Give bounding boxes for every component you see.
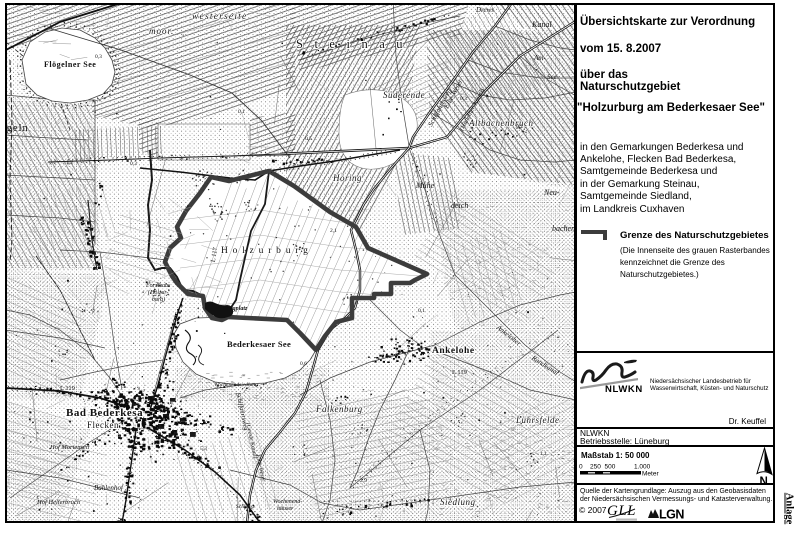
svg-text:deich: deich bbox=[451, 201, 468, 210]
svg-text:1,1: 1,1 bbox=[540, 451, 547, 457]
svg-text:N: N bbox=[760, 476, 768, 488]
svg-text:0,2: 0,2 bbox=[516, 124, 523, 130]
svg-text:0,3: 0,3 bbox=[460, 96, 467, 102]
svg-text:Schleuse: Schleuse bbox=[236, 504, 256, 510]
svg-text:Bad Bederkesa: Bad Bederkesa bbox=[66, 407, 143, 419]
svg-text:Altbachenbruch: Altbachenbruch bbox=[468, 118, 534, 128]
svg-text:0,6: 0,6 bbox=[300, 361, 307, 367]
svg-text:Lührsfelde: Lührsfelde bbox=[515, 415, 560, 425]
svg-text:2,9: 2,9 bbox=[360, 478, 367, 484]
svg-text:Hof Mortensen: Hof Mortensen bbox=[49, 444, 89, 451]
svg-text:See: See bbox=[547, 73, 557, 81]
svg-text:1.000: 1.000 bbox=[634, 464, 651, 471]
svg-text:Kanal: Kanal bbox=[531, 20, 552, 29]
svg-text:Mühe: Mühe bbox=[415, 181, 435, 190]
svg-text:250: 250 bbox=[590, 464, 601, 471]
svg-text:Flecken: Flecken bbox=[87, 420, 119, 430]
svg-text:2,1: 2,1 bbox=[330, 228, 337, 234]
svg-text:Wochenendsiedlung: Wochenendsiedlung bbox=[214, 382, 258, 388]
svg-text:Ankelohe: Ankelohe bbox=[432, 346, 475, 356]
svg-text:westerseite: westerseite bbox=[192, 12, 247, 22]
svg-text:0,1: 0,1 bbox=[418, 308, 425, 314]
svg-text:1,2: 1,2 bbox=[66, 160, 73, 166]
svg-text:Neu-: Neu- bbox=[543, 188, 560, 197]
svg-text:moor.: moor. bbox=[149, 26, 174, 36]
svg-text:Hof Hellerbruch: Hof Hellerbruch bbox=[36, 499, 80, 506]
svg-text:0,3: 0,3 bbox=[130, 161, 137, 167]
svg-text:0,5: 0,5 bbox=[305, 136, 312, 142]
svg-text:Meter: Meter bbox=[642, 471, 659, 478]
svg-text:Höring: Höring bbox=[332, 173, 362, 183]
svg-text:Drews: Drews bbox=[475, 6, 494, 14]
svg-text:Steinau: Steinau bbox=[296, 37, 414, 51]
svg-text:burg): burg) bbox=[152, 296, 165, 303]
svg-text:L 119: L 119 bbox=[452, 369, 467, 376]
svg-text:Wochenend-: Wochenend- bbox=[273, 499, 302, 505]
svg-text:Siedlung: Siedlung bbox=[440, 497, 476, 507]
svg-text:Bahlenhof: Bahlenhof bbox=[94, 484, 124, 492]
svg-text:LGN: LGN bbox=[659, 508, 684, 522]
svg-text:flögeln: flögeln bbox=[0, 123, 29, 134]
svg-text:1,3: 1,3 bbox=[350, 531, 357, 536]
svg-text:0: 0 bbox=[579, 464, 583, 471]
svg-text:Forsthaus: Forsthaus bbox=[145, 283, 171, 289]
svg-text:Bederkesaer See: Bederkesaer See bbox=[227, 339, 291, 349]
svg-text:5,3: 5,3 bbox=[200, 446, 207, 452]
svg-text:Falkenburg: Falkenburg bbox=[315, 404, 363, 414]
svg-text:bachen: bachen bbox=[552, 224, 575, 233]
svg-text:500: 500 bbox=[605, 464, 616, 471]
svg-text:häuser: häuser bbox=[277, 506, 294, 512]
svg-text:Süderende: Süderende bbox=[383, 90, 425, 100]
svg-text:0,1: 0,1 bbox=[238, 109, 245, 115]
svg-text:Burgplatz: Burgplatz bbox=[222, 306, 248, 312]
svg-text:(Holzur-: (Holzur- bbox=[148, 289, 169, 296]
svg-text:L 119: L 119 bbox=[60, 385, 75, 392]
svg-text:0,3: 0,3 bbox=[95, 54, 102, 60]
svg-text:Am-: Am- bbox=[533, 54, 546, 62]
svg-text:Flögelner See: Flögelner See bbox=[44, 60, 96, 69]
svg-text:Holzurburg: Holzurburg bbox=[221, 246, 313, 256]
